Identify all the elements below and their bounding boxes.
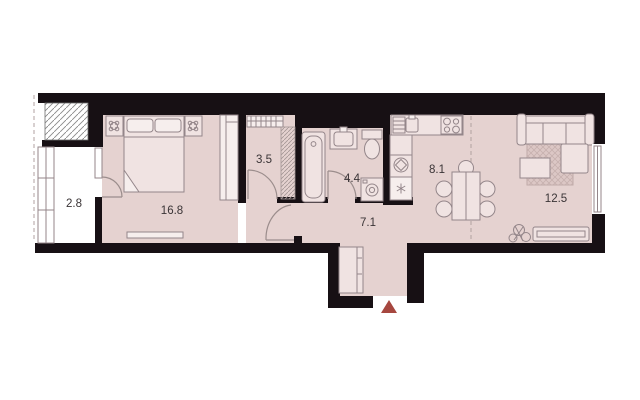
chair-icon — [479, 181, 495, 197]
bedroom-area-label: 16.8 — [161, 205, 183, 217]
balcony-floor — [54, 147, 95, 243]
chair-icon — [436, 181, 452, 197]
wardrobe-area-label: 3.5 — [256, 154, 272, 166]
bedroom-radiator — [127, 232, 183, 238]
hall-wardrobe-icon — [339, 247, 363, 293]
nightstand-left-icon — [106, 116, 123, 136]
bathroom-area-label: 4.4 — [344, 173, 361, 185]
bedroom-wardrobe-icon — [220, 115, 238, 200]
washing-machine-icon — [361, 178, 383, 201]
chair-icon — [479, 201, 495, 217]
living-area-label: 12.5 — [545, 193, 567, 205]
bedroom-balcony-window — [95, 148, 102, 178]
nightstand-right-icon — [185, 116, 202, 136]
chair-icon — [436, 201, 452, 217]
balcony-area-label: 2.8 — [66, 198, 82, 210]
kitchen-area-label: 8.1 — [429, 164, 445, 176]
floor-plan: 2.8 16.8 3.5 4.4 7.1 8.1 12.5 — [0, 0, 640, 400]
balcony-window — [38, 147, 54, 243]
hallway-floor — [246, 203, 413, 243]
fridge-icon — [390, 177, 412, 200]
coffee-table-icon — [520, 158, 550, 178]
hallway-area-label: 7.1 — [360, 217, 376, 229]
bathroom-sink-icon — [330, 127, 357, 149]
bathtub-icon — [302, 132, 325, 202]
shaft-hatch — [45, 103, 88, 140]
bed-icon — [124, 116, 184, 192]
tv-stand-icon — [533, 227, 589, 241]
living-room-window — [592, 144, 605, 214]
